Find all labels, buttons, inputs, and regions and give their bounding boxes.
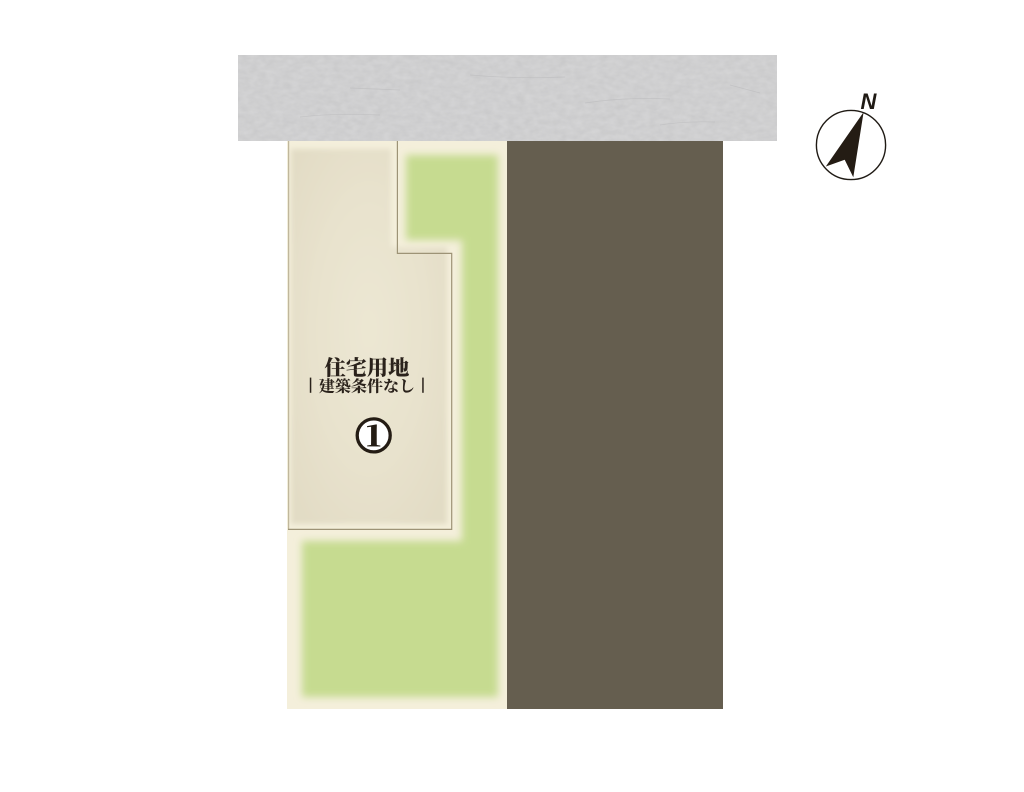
- svg-text:N: N: [861, 89, 878, 114]
